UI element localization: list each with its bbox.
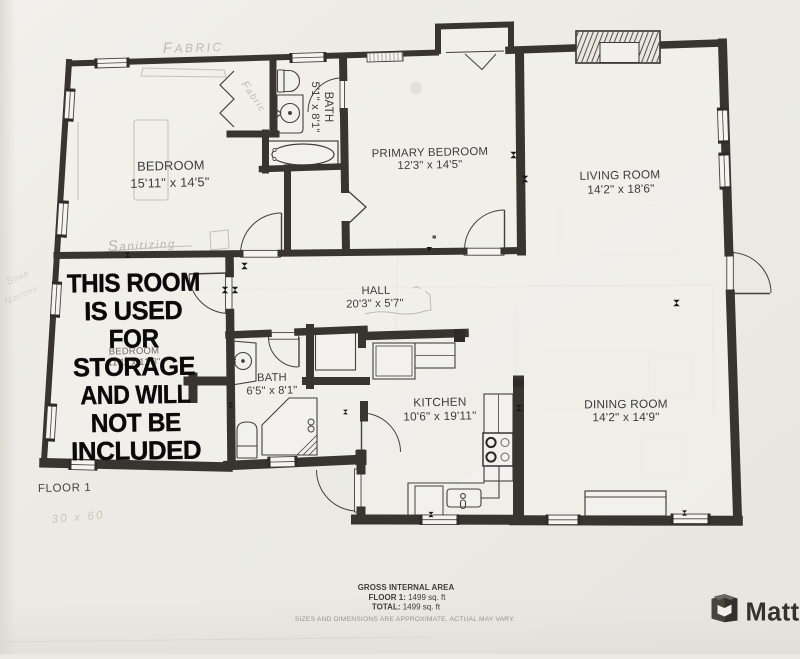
svg-text:GROSS INTERNAL AREA: GROSS INTERNAL AREA <box>358 583 455 592</box>
svg-text:PRIMARY BEDROOM: PRIMARY BEDROOM <box>372 146 489 160</box>
svg-text:NOT BE: NOT BE <box>91 407 182 438</box>
svg-text:KITCHEN: KITCHEN <box>413 395 466 410</box>
svg-text:5'1" x 8'1": 5'1" x 8'1" <box>309 81 321 132</box>
svg-text:FLOOR 1: FLOOR 1 <box>38 482 92 495</box>
svg-text:TOTAL: 1499 sq. ft: TOTAL: 1499 sq. ft <box>372 603 441 612</box>
svg-text:FOR: FOR <box>108 323 159 354</box>
svg-text:HALL: HALL <box>361 285 390 298</box>
svg-text:14'2" x 18'6": 14'2" x 18'6" <box>587 181 655 196</box>
svg-text:INCLUDED: INCLUDED <box>71 435 201 467</box>
svg-text:SIZES AND DIMENSIONS ARE APPRO: SIZES AND DIMENSIONS ARE APPROXIMATE, AC… <box>295 616 515 623</box>
svg-text:14'2" x 14'9": 14'2" x 14'9" <box>592 410 659 425</box>
svg-text:BATH: BATH <box>257 372 287 385</box>
svg-text:BATH: BATH <box>322 92 335 123</box>
svg-text:FLOOR 1: 1499 sq. ft: FLOOR 1: 1499 sq. ft <box>369 593 447 602</box>
svg-text:BEDROOM: BEDROOM <box>137 157 205 173</box>
svg-text:12'3" x 14'5": 12'3" x 14'5" <box>397 159 462 172</box>
svg-text:Matt: Matt <box>746 599 800 627</box>
svg-text:IS USED: IS USED <box>84 295 182 326</box>
svg-text:15'11" x 14'5": 15'11" x 14'5" <box>130 174 209 191</box>
svg-text:THIS ROOM: THIS ROOM <box>67 267 200 299</box>
svg-text:STORAGE: STORAGE <box>73 351 196 383</box>
svg-text:FABRIC: FABRIC <box>163 38 224 57</box>
svg-text:10'6" x 19'11": 10'6" x 19'11" <box>403 408 476 423</box>
svg-text:6'5" x 8'1": 6'5" x 8'1" <box>246 384 297 397</box>
svg-text:AND WILL: AND WILL <box>80 379 191 411</box>
svg-text:20'3" x 5'7": 20'3" x 5'7" <box>346 297 404 310</box>
